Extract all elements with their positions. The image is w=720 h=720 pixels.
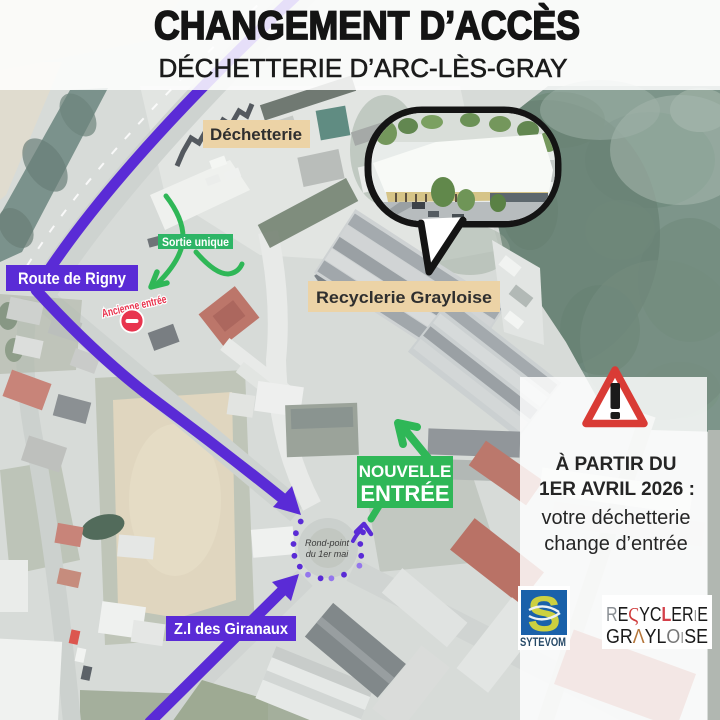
svg-text:votre déchetterie: votre déchetterie — [542, 507, 691, 529]
svg-text:Sortie unique: Sortie unique — [162, 235, 229, 249]
svg-text:Rond-point: Rond-point — [305, 538, 350, 548]
svg-text:NOUVELLE: NOUVELLE — [359, 462, 452, 481]
svg-text:du 1er mai: du 1er mai — [306, 549, 350, 559]
svg-text:REϚYCLERIE: REϚYCLERIE — [606, 604, 708, 626]
svg-text:ENTRÉE: ENTRÉE — [360, 481, 449, 506]
svg-text:change d’entrée: change d’entrée — [544, 533, 687, 555]
svg-text:1ER AVRIL 2026 :: 1ER AVRIL 2026 : — [539, 479, 695, 500]
svg-text:GRɅYLOISE: GRɅYLOISE — [606, 626, 708, 648]
svg-text:CHANGEMENT D’ACCÈS: CHANGEMENT D’ACCÈS — [154, 3, 580, 48]
svg-text:DÉCHETTERIE D’ARC-LÈS-GRAY: DÉCHETTERIE D’ARC-LÈS-GRAY — [159, 53, 568, 83]
svg-text:SYTEVOM: SYTEVOM — [520, 637, 566, 649]
svg-text:Z.I des Giranaux: Z.I des Giranaux — [174, 621, 288, 638]
svg-text:À PARTIR DU: À PARTIR DU — [555, 453, 676, 475]
svg-text:Route de Rigny: Route de Rigny — [18, 269, 126, 288]
svg-text:S: S — [527, 586, 560, 642]
svg-text:Déchetterie: Déchetterie — [210, 125, 302, 144]
svg-text:Recyclerie Grayloise: Recyclerie Grayloise — [316, 288, 492, 307]
